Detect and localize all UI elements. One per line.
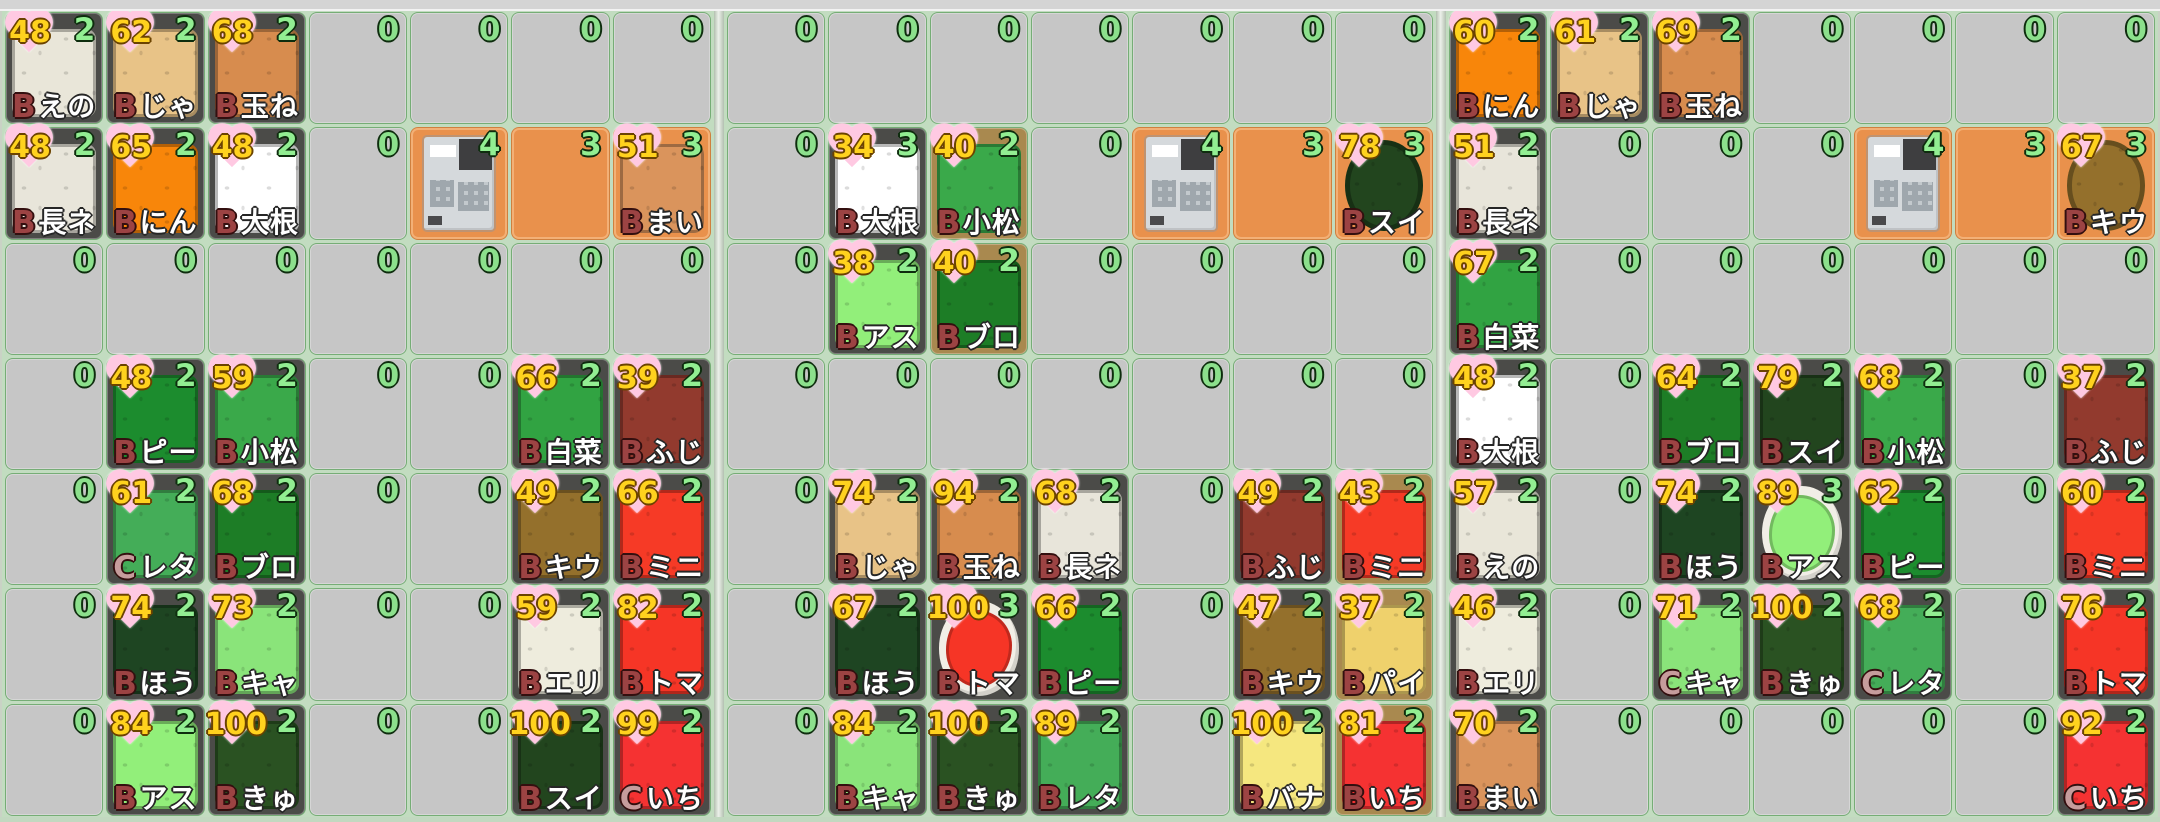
cell-p1-r3-c0[interactable]: 0 — [6, 359, 102, 469]
count-badge: 0 — [796, 359, 818, 393]
cell-p2-r6-c2[interactable]: 2100Bきゅ — [931, 705, 1027, 815]
cell-p1-r2-c2[interactable]: 0 — [209, 244, 305, 354]
cell-p1-r1-c6[interactable]: 351Bまい — [614, 128, 710, 238]
count-badge: 0 — [1720, 244, 1742, 278]
grade-letter: B — [835, 667, 859, 701]
cell-p2-r4-c0[interactable]: 0 — [728, 474, 824, 584]
cell-p3-r2-c1[interactable]: 0 — [1551, 244, 1647, 354]
cell-p3-r2-c3[interactable]: 0 — [1754, 244, 1850, 354]
count-badge: 2 — [897, 589, 919, 623]
crop-name: まい — [1482, 782, 1540, 815]
count-badge: 4 — [1923, 128, 1945, 162]
crop-name: ミニ — [1368, 551, 1426, 584]
cell-p2-r6-c3[interactable]: 289Bレタ — [1032, 705, 1128, 815]
cell-p2-r3-c4[interactable]: 0 — [1133, 359, 1229, 469]
cell-p2-r1-c3[interactable]: 0 — [1032, 128, 1128, 238]
cell-p1-r5-c3[interactable]: 0 — [310, 589, 406, 699]
count-badge: 2 — [1518, 359, 1540, 393]
cell-p1-r5-c6[interactable]: 282Bトマ — [614, 589, 710, 699]
price-value: 48 — [205, 131, 261, 165]
cell-p2-r2-c5[interactable]: 0 — [1234, 244, 1330, 354]
grade-letter: B — [1659, 90, 1683, 124]
cell-p3-r4-c0[interactable]: 257Bえの — [1450, 474, 1546, 584]
cell-p3-r0-c5[interactable]: 0 — [1956, 13, 2052, 123]
count-badge: 0 — [378, 244, 400, 278]
crop-name: スイ — [545, 782, 603, 815]
count-badge: 2 — [276, 128, 298, 162]
count-badge: 2 — [998, 474, 1020, 508]
cell-p2-r3-c0[interactable]: 0 — [728, 359, 824, 469]
cell-p2-r5-c4[interactable]: 0 — [1133, 589, 1229, 699]
count-badge: 2 — [1720, 359, 1742, 393]
grade-letter: B — [1861, 436, 1885, 470]
price-value: 40 — [927, 247, 983, 281]
crop-name: レタ — [1064, 782, 1122, 815]
count-badge: 0 — [796, 13, 818, 47]
cell-p2-r4-c2[interactable]: 294B玉ね — [931, 474, 1027, 584]
cell-p3-r1-c6[interactable]: 367Bキウ — [2058, 128, 2154, 238]
cell-p2-r5-c2[interactable]: 3100Bトマ — [931, 589, 1027, 699]
cell-p2-r1-c6[interactable]: 378Bスイ — [1336, 128, 1432, 238]
cell-p1-r0-c5[interactable]: 0 — [512, 13, 608, 123]
grade-letter: B — [215, 551, 239, 585]
count-badge: 2 — [998, 128, 1020, 162]
crop-name: ふじ — [646, 436, 704, 469]
count-badge: 2 — [1720, 13, 1742, 47]
cell-p2-r1-c1[interactable]: 334B大根 — [829, 128, 925, 238]
count-badge: 0 — [2125, 13, 2147, 47]
panel-divider — [714, 8, 724, 822]
count-badge: 0 — [1822, 128, 1844, 162]
crop-name: キウ — [1267, 667, 1325, 700]
crop-name: スイ — [1368, 206, 1426, 239]
cell-p1-r6-c4[interactable]: 0 — [411, 705, 507, 815]
cell-p2-r2-c4[interactable]: 0 — [1133, 244, 1229, 354]
count-badge: 2 — [681, 474, 703, 508]
count-badge: 3 — [1822, 474, 1844, 508]
bottom-strip — [0, 817, 2160, 822]
price-value: 60 — [2054, 477, 2110, 511]
count-badge: 2 — [1923, 589, 1945, 623]
count-badge: 0 — [276, 244, 298, 278]
cell-p2-r6-c0[interactable]: 0 — [728, 705, 824, 815]
cell-p1-r5-c5[interactable]: 259Bエリ — [512, 589, 608, 699]
cell-p3-r3-c6[interactable]: 237Bふじ — [2058, 359, 2154, 469]
count-badge: 2 — [175, 474, 197, 508]
grade-letter: B — [1760, 436, 1784, 470]
cell-p1-r3-c1[interactable]: 248Bピー — [107, 359, 203, 469]
cell-p1-r2-c5[interactable]: 0 — [512, 244, 608, 354]
cell-p3-r5-c2[interactable]: 271Cキャ — [1653, 589, 1749, 699]
cell-p3-r6-c4[interactable]: 0 — [1855, 705, 1951, 815]
cell-p3-r0-c0[interactable]: 260Bにん — [1450, 13, 1546, 123]
grade-letter: B — [1456, 90, 1480, 124]
cell-p1-r3-c5[interactable]: 266B白菜 — [512, 359, 608, 469]
cell-p3-r5-c1[interactable]: 0 — [1551, 589, 1647, 699]
cell-p3-r1-c4[interactable]: 4 — [1855, 128, 1951, 238]
cell-p1-r4-c0[interactable]: 0 — [6, 474, 102, 584]
cell-p3-r0-c1[interactable]: 261Bじゃ — [1551, 13, 1647, 123]
cell-p1-r4-c4[interactable]: 0 — [411, 474, 507, 584]
cell-p1-r2-c0[interactable]: 0 — [6, 244, 102, 354]
crop-name: 玉ね — [241, 90, 299, 123]
top-strip — [0, 0, 2160, 11]
cell-p1-r1-c5[interactable]: 3 — [512, 128, 608, 238]
cell-p2-r1-c0[interactable]: 0 — [728, 128, 824, 238]
count-badge: 0 — [681, 13, 703, 47]
cell-p2-r1-c2[interactable]: 240B小松 — [931, 128, 1027, 238]
cell-p1-r6-c2[interactable]: 2100Bきゅ — [209, 705, 305, 815]
cell-p2-r5-c1[interactable]: 267Bほう — [829, 589, 925, 699]
field-panel-3: 260Bにん261Bじゃ269B玉ね0000251B長ネ00043367Bキウ2… — [1446, 8, 2158, 822]
grade-letter: B — [1760, 551, 1784, 585]
price-value: 62 — [1851, 477, 1907, 511]
count-badge: 0 — [897, 13, 919, 47]
count-badge: 0 — [998, 359, 1020, 393]
count-badge: 0 — [1923, 705, 1945, 739]
count-badge: 0 — [796, 128, 818, 162]
grade-letter: B — [1342, 782, 1366, 816]
cell-p2-r4-c3[interactable]: 268B長ネ — [1032, 474, 1128, 584]
cell-p1-r0-c6[interactable]: 0 — [614, 13, 710, 123]
count-badge: 2 — [1403, 705, 1425, 739]
crop-name: いち — [646, 782, 704, 815]
cell-p3-r5-c5[interactable]: 0 — [1956, 589, 2052, 699]
cell-p1-r3-c4[interactable]: 0 — [411, 359, 507, 469]
cell-p1-r1-c1[interactable]: 265Bにん — [107, 128, 203, 238]
crop-name: 小松 — [241, 436, 299, 469]
count-badge: 2 — [2125, 359, 2147, 393]
cell-p2-r0-c3[interactable]: 0 — [1032, 13, 1128, 123]
count-badge: 2 — [897, 244, 919, 278]
count-badge: 0 — [1201, 359, 1223, 393]
count-badge: 3 — [580, 128, 602, 162]
cell-p1-r0-c0[interactable]: 248Bえの — [6, 13, 102, 123]
price-value: 60 — [1446, 16, 1502, 50]
crop-name: 長ネ — [38, 206, 96, 239]
price-value: 64 — [1649, 362, 1705, 396]
cell-p2-r3-c6[interactable]: 0 — [1336, 359, 1432, 469]
cell-p1-r1-c0[interactable]: 248B長ネ — [6, 128, 102, 238]
cell-p1-r4-c5[interactable]: 249Bキウ — [512, 474, 608, 584]
cell-p1-r2-c6[interactable]: 0 — [614, 244, 710, 354]
cell-p3-r3-c4[interactable]: 268B小松 — [1855, 359, 1951, 469]
grade-letter: B — [215, 90, 239, 124]
cell-p3-r5-c6[interactable]: 276Bトマ — [2058, 589, 2154, 699]
cell-p2-r5-c6[interactable]: 237Bパイ — [1336, 589, 1432, 699]
cell-p1-r5-c1[interactable]: 274Bほう — [107, 589, 203, 699]
cell-p2-r2-c2[interactable]: 240Bブロ — [931, 244, 1027, 354]
count-badge: 2 — [1518, 244, 1540, 278]
grade-letter: B — [1038, 551, 1062, 585]
crop-name: レタ — [140, 551, 198, 584]
count-badge: 0 — [1201, 474, 1223, 508]
cell-p2-r2-c3[interactable]: 0 — [1032, 244, 1128, 354]
count-badge: 2 — [1403, 474, 1425, 508]
price-value: 68 — [205, 477, 261, 511]
cell-p1-r6-c6[interactable]: 299Cいち — [614, 705, 710, 815]
price-value: 68 — [1851, 592, 1907, 626]
cell-p1-r2-c3[interactable]: 0 — [310, 244, 406, 354]
cell-p2-r0-c4[interactable]: 0 — [1133, 13, 1229, 123]
cell-p2-r3-c1[interactable]: 0 — [829, 359, 925, 469]
cell-p3-r6-c5[interactable]: 0 — [1956, 705, 2052, 815]
count-badge: 2 — [580, 474, 602, 508]
price-value: 100 — [927, 708, 990, 742]
cell-p1-r4-c3[interactable]: 0 — [310, 474, 406, 584]
count-badge: 2 — [1518, 705, 1540, 739]
count-badge: 0 — [378, 13, 400, 47]
register-keypad — [1874, 180, 1898, 208]
cell-p1-r4-c6[interactable]: 266Bミニ — [614, 474, 710, 584]
grade-letter: B — [937, 551, 961, 585]
cell-p2-r5-c3[interactable]: 266Bピー — [1032, 589, 1128, 699]
count-badge: 0 — [796, 474, 818, 508]
count-badge: 0 — [1302, 244, 1324, 278]
cell-p1-r5-c2[interactable]: 273Bキャ — [209, 589, 305, 699]
count-badge: 2 — [276, 705, 298, 739]
cell-p1-r6-c0[interactable]: 0 — [6, 705, 102, 815]
count-badge: 0 — [1720, 128, 1742, 162]
cell-p2-r0-c0[interactable]: 0 — [728, 13, 824, 123]
cell-p2-r3-c2[interactable]: 0 — [931, 359, 1027, 469]
count-badge: 0 — [897, 359, 919, 393]
price-value: 65 — [103, 131, 159, 165]
cell-p2-r6-c1[interactable]: 284Bキャ — [829, 705, 925, 815]
cell-p2-r0-c1[interactable]: 0 — [829, 13, 925, 123]
cell-p2-r1-c4[interactable]: 4 — [1133, 128, 1229, 238]
cell-p3-r0-c2[interactable]: 269B玉ね — [1653, 13, 1749, 123]
price-value: 69 — [1649, 16, 1705, 50]
cell-p1-r0-c2[interactable]: 268B玉ね — [209, 13, 305, 123]
grade-letter: B — [215, 667, 239, 701]
cell-p1-r3-c2[interactable]: 259B小松 — [209, 359, 305, 469]
cell-p3-r6-c0[interactable]: 270Bまい — [1450, 705, 1546, 815]
cell-p3-r4-c1[interactable]: 0 — [1551, 474, 1647, 584]
cell-p3-r3-c0[interactable]: 248B大根 — [1450, 359, 1546, 469]
cell-p2-r2-c1[interactable]: 238Bアス — [829, 244, 925, 354]
cell-p1-r2-c4[interactable]: 0 — [411, 244, 507, 354]
grade-letter: B — [12, 90, 36, 124]
cell-p2-r2-c6[interactable]: 0 — [1336, 244, 1432, 354]
cell-p3-r2-c5[interactable]: 0 — [1956, 244, 2052, 354]
price-value: 51 — [1446, 131, 1502, 165]
price-value: 59 — [508, 592, 564, 626]
price-value: 89 — [1750, 477, 1806, 511]
crop-name: ほう — [862, 667, 920, 700]
count-badge: 0 — [1923, 244, 1945, 278]
cell-p3-r3-c3[interactable]: 279Bスイ — [1754, 359, 1850, 469]
cell-p2-r4-c6[interactable]: 243Bミニ — [1336, 474, 1432, 584]
cell-p1-r6-c5[interactable]: 2100Bスイ — [512, 705, 608, 815]
cell-p2-r0-c5[interactable]: 0 — [1234, 13, 1330, 123]
crop-name: ミニ — [2090, 551, 2148, 584]
count-badge: 0 — [580, 13, 602, 47]
count-badge: 2 — [1923, 359, 1945, 393]
cell-p2-r4-c4[interactable]: 0 — [1133, 474, 1229, 584]
crop-name: 小松 — [963, 206, 1021, 239]
count-badge: 0 — [1302, 13, 1324, 47]
crop-name: 大根 — [241, 206, 299, 239]
cell-p3-r5-c3[interactable]: 2100Bきゅ — [1754, 589, 1850, 699]
cell-p1-r1-c2[interactable]: 248B大根 — [209, 128, 305, 238]
count-badge: 3 — [681, 128, 703, 162]
cell-p2-r3-c3[interactable]: 0 — [1032, 359, 1128, 469]
cell-p3-r4-c6[interactable]: 260Bミニ — [2058, 474, 2154, 584]
cell-p2-r4-c1[interactable]: 274Bじゃ — [829, 474, 925, 584]
price-value: 89 — [1028, 708, 1084, 742]
count-badge: 2 — [175, 13, 197, 47]
cell-p2-r0-c6[interactable]: 0 — [1336, 13, 1432, 123]
register-keypad — [430, 180, 454, 208]
grade-letter: B — [215, 436, 239, 470]
cell-p3-r3-c2[interactable]: 264Bブロ — [1653, 359, 1749, 469]
cell-p1-r0-c1[interactable]: 262Bじゃ — [107, 13, 203, 123]
cell-p1-r3-c3[interactable]: 0 — [310, 359, 406, 469]
cell-p3-r3-c5[interactable]: 0 — [1956, 359, 2052, 469]
count-badge: 0 — [1100, 13, 1122, 47]
cell-p3-r6-c3[interactable]: 0 — [1754, 705, 1850, 815]
cell-p2-r1-c5[interactable]: 3 — [1234, 128, 1330, 238]
crop-name: 白菜 — [1482, 321, 1540, 354]
price-value: 71 — [1649, 592, 1705, 626]
cell-p1-r4-c1[interactable]: 261Cレタ — [107, 474, 203, 584]
cell-p1-r2-c1[interactable]: 0 — [107, 244, 203, 354]
cell-p1-r0-c4[interactable]: 0 — [411, 13, 507, 123]
grade-letter: B — [2064, 436, 2088, 470]
price-value: 92 — [2054, 708, 2110, 742]
cell-p3-r2-c4[interactable]: 0 — [1855, 244, 1951, 354]
cell-p3-r2-c2[interactable]: 0 — [1653, 244, 1749, 354]
cell-p3-r6-c1[interactable]: 0 — [1551, 705, 1647, 815]
cell-p3-r5-c4[interactable]: 268Cレタ — [1855, 589, 1951, 699]
cell-p2-r0-c2[interactable]: 0 — [931, 13, 1027, 123]
register-display — [1874, 145, 1901, 157]
cell-p1-r5-c0[interactable]: 0 — [6, 589, 102, 699]
cell-p1-r6-c1[interactable]: 284Bアス — [107, 705, 203, 815]
cell-p3-r5-c0[interactable]: 246Bエリ — [1450, 589, 1546, 699]
cell-p2-r6-c6[interactable]: 281Bいち — [1336, 705, 1432, 815]
count-badge: 3 — [998, 589, 1020, 623]
count-badge: 2 — [897, 705, 919, 739]
cell-p1-r5-c4[interactable]: 0 — [411, 589, 507, 699]
crop-name: えの — [38, 90, 96, 123]
price-value: 100 — [205, 708, 268, 742]
cell-p2-r6-c4[interactable]: 0 — [1133, 705, 1229, 815]
cell-p1-r4-c2[interactable]: 268Bブロ — [209, 474, 305, 584]
grade-letter: B — [620, 206, 644, 240]
grade-letter: C — [620, 782, 643, 816]
count-badge: 0 — [1619, 705, 1641, 739]
cell-p1-r3-c6[interactable]: 239Bふじ — [614, 359, 710, 469]
price-value: 62 — [103, 16, 159, 50]
cell-p3-r6-c6[interactable]: 292Cいち — [2058, 705, 2154, 815]
count-badge: 0 — [580, 244, 602, 278]
cell-p3-r2-c0[interactable]: 267B白菜 — [1450, 244, 1546, 354]
count-badge: 0 — [1100, 244, 1122, 278]
count-badge: 0 — [479, 13, 501, 47]
cell-p3-r4-c3[interactable]: 389Bアス — [1754, 474, 1850, 584]
count-badge: 0 — [479, 244, 501, 278]
count-badge: 4 — [479, 128, 501, 162]
cell-p3-r1-c3[interactable]: 0 — [1754, 128, 1850, 238]
cell-p3-r6-c2[interactable]: 0 — [1653, 705, 1749, 815]
cell-p3-r2-c6[interactable]: 0 — [2058, 244, 2154, 354]
cell-p3-r1-c2[interactable]: 0 — [1653, 128, 1749, 238]
grade-letter: B — [2064, 551, 2088, 585]
price-value: 94 — [927, 477, 983, 511]
cell-p3-r4-c4[interactable]: 262Bピー — [1855, 474, 1951, 584]
register-drawer-button — [428, 216, 442, 225]
count-badge: 0 — [2024, 589, 2046, 623]
cell-p3-r4-c5[interactable]: 0 — [1956, 474, 2052, 584]
cell-p2-r5-c5[interactable]: 247Bキウ — [1234, 589, 1330, 699]
grade-letter: B — [518, 667, 542, 701]
count-badge: 2 — [1518, 474, 1540, 508]
count-badge: 0 — [1619, 359, 1641, 393]
crop-name: エリ — [545, 667, 603, 700]
price-value: 67 — [2054, 131, 2110, 165]
cell-p2-r4-c5[interactable]: 249Bふじ — [1234, 474, 1330, 584]
crop-name: じゃ — [1584, 90, 1642, 123]
grade-letter: B — [12, 206, 36, 240]
cell-p2-r2-c0[interactable]: 0 — [728, 244, 824, 354]
cell-p3-r1-c5[interactable]: 3 — [1956, 128, 2052, 238]
count-badge: 0 — [175, 244, 197, 278]
count-badge: 0 — [2024, 705, 2046, 739]
count-badge: 0 — [479, 474, 501, 508]
grade-letter: B — [1456, 667, 1480, 701]
price-value: 70 — [1446, 708, 1502, 742]
count-badge: 2 — [897, 474, 919, 508]
cell-p3-r0-c6[interactable]: 0 — [2058, 13, 2154, 123]
price-value: 46 — [1446, 592, 1502, 626]
count-badge: 0 — [1201, 589, 1223, 623]
grade-letter: B — [2064, 667, 2088, 701]
count-badge: 0 — [1619, 474, 1641, 508]
cell-p1-r1-c3[interactable]: 0 — [310, 128, 406, 238]
cell-p1-r0-c3[interactable]: 0 — [310, 13, 406, 123]
cell-p2-r3-c5[interactable]: 0 — [1234, 359, 1330, 469]
cell-p3-r0-c3[interactable]: 0 — [1754, 13, 1850, 123]
cell-p2-r5-c0[interactable]: 0 — [728, 589, 824, 699]
grade-letter: B — [620, 551, 644, 585]
count-badge: 0 — [1822, 13, 1844, 47]
count-badge: 0 — [1201, 13, 1223, 47]
field-panels-container: 248Bえの262Bじゃ268B玉ね0000248B長ネ265Bにん248B大根… — [2, 8, 2158, 822]
crop-name: トマ — [963, 667, 1021, 700]
grade-letter: B — [937, 782, 961, 816]
cell-p3-r4-c2[interactable]: 274Bほう — [1653, 474, 1749, 584]
grade-letter: B — [1342, 551, 1366, 585]
count-badge: 0 — [1923, 13, 1945, 47]
grade-letter: B — [1456, 782, 1480, 816]
count-badge: 0 — [1201, 244, 1223, 278]
register-display — [1152, 145, 1179, 157]
crop-name: アス — [1786, 551, 1844, 584]
crop-name: きゅ — [963, 782, 1021, 815]
cell-p3-r1-c1[interactable]: 0 — [1551, 128, 1647, 238]
cell-p3-r1-c0[interactable]: 251B長ネ — [1450, 128, 1546, 238]
grade-letter: B — [835, 206, 859, 240]
cell-p1-r6-c3[interactable]: 0 — [310, 705, 406, 815]
price-value: 68 — [205, 16, 261, 50]
cell-p3-r3-c1[interactable]: 0 — [1551, 359, 1647, 469]
price-value: 79 — [1750, 362, 1806, 396]
cell-p1-r1-c4[interactable]: 4 — [411, 128, 507, 238]
cell-p3-r0-c4[interactable]: 0 — [1855, 13, 1951, 123]
cell-p2-r6-c5[interactable]: 2100Bバナ — [1234, 705, 1330, 815]
